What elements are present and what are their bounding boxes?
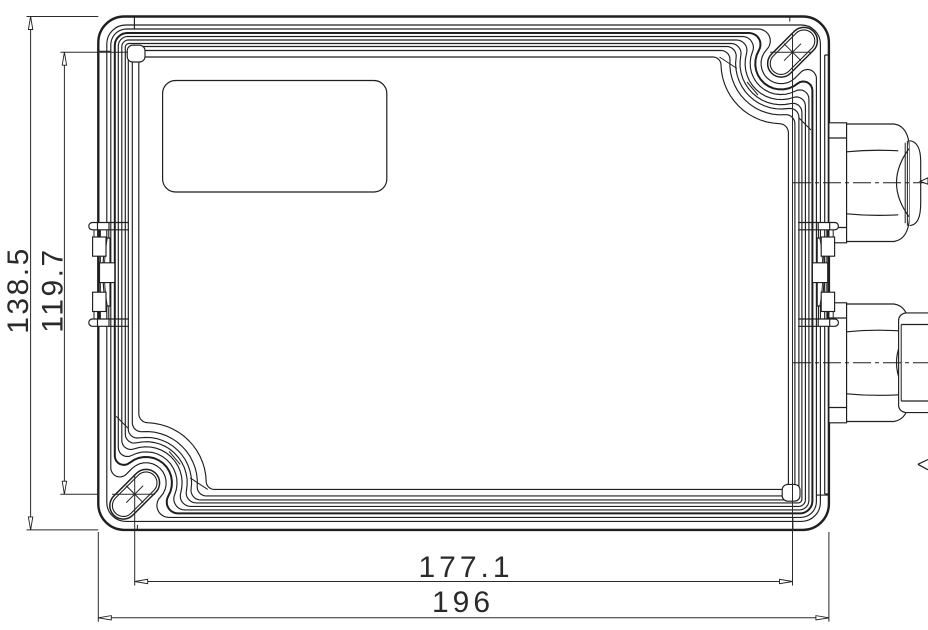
svg-text:138.5: 138.5 [2, 246, 35, 334]
svg-text:119.7: 119.7 [37, 247, 70, 332]
svg-text:196: 196 [432, 586, 494, 619]
svg-text:177.1: 177.1 [418, 551, 513, 584]
